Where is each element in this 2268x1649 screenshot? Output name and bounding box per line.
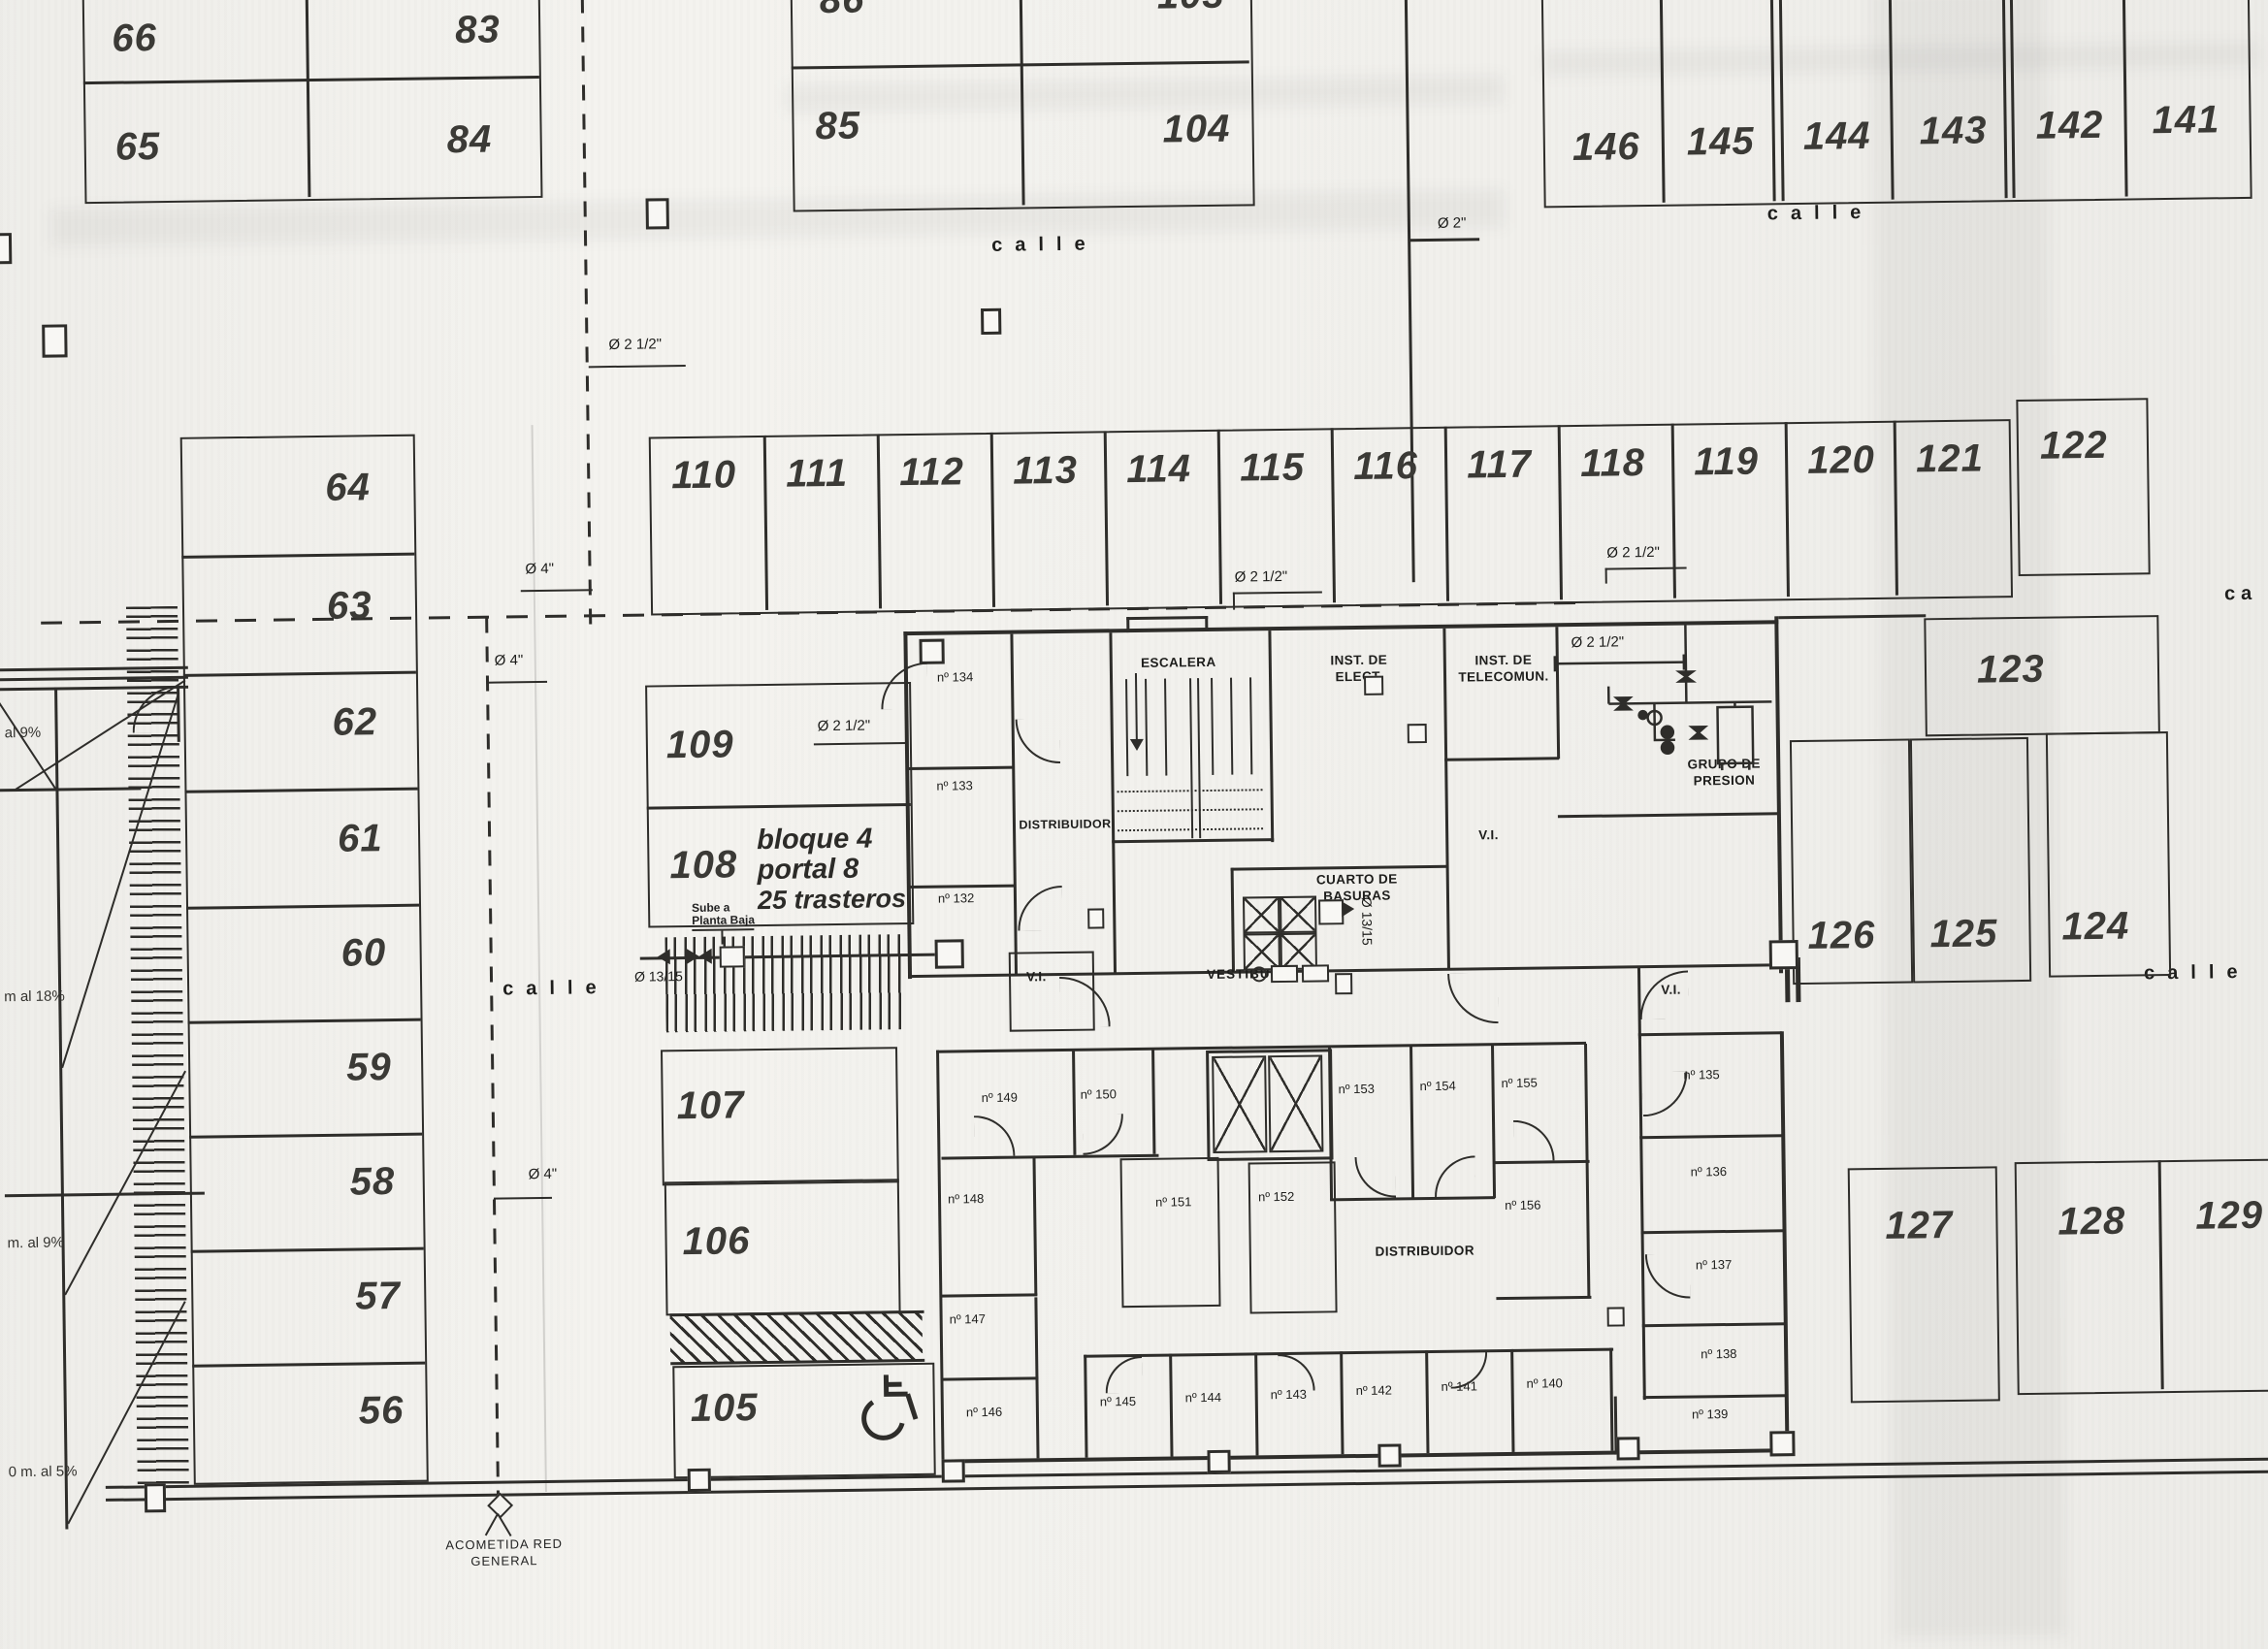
valve-icon — [658, 949, 670, 964]
parking-space-126: 126 — [1807, 914, 1875, 958]
paper-crease — [532, 425, 547, 1492]
ramp-slope-label-9a: al 9% — [5, 725, 42, 741]
street-label-calle-left: calle — [502, 977, 609, 1000]
marker-square — [1335, 973, 1352, 994]
curb-marker — [1207, 1450, 1230, 1473]
curb-marker — [1377, 1443, 1401, 1467]
parking-space-120: 120 — [1807, 438, 1875, 483]
wall — [1268, 630, 1274, 842]
trastero-label-133: nº 133 — [936, 778, 972, 792]
wall — [1330, 1196, 1495, 1201]
wall — [1072, 1051, 1076, 1155]
wall — [1510, 1349, 1514, 1452]
parking-space-108: 108 — [669, 843, 737, 888]
door-arc — [1278, 1354, 1314, 1391]
trastero-label-145: nº 145 — [1100, 1394, 1136, 1408]
parking-space-127: 127 — [1885, 1204, 1953, 1248]
room-label-escalera: ESCALERA — [1116, 655, 1242, 673]
curb-marker — [1769, 1431, 1795, 1456]
marker-square — [981, 308, 1001, 335]
no-parking-hatch — [670, 1312, 923, 1364]
floor-plan-scan: 66 83 65 84 86 103 85 104 146 145 144 14… — [0, 0, 2268, 1649]
trastero-label-147: nº 147 — [950, 1311, 986, 1326]
marker-square — [42, 324, 67, 357]
block-note-bloque: bloque 4 — [757, 824, 926, 857]
curb-marker — [145, 1483, 166, 1512]
pipe-tick — [1409, 238, 1479, 241]
parking-space-60: 60 — [340, 931, 386, 976]
parking-space-61: 61 — [338, 817, 383, 861]
parking-block-topright — [1540, 0, 2252, 208]
wall — [1084, 1355, 1087, 1458]
acometida-leg — [485, 1513, 499, 1536]
door-arc — [1450, 1351, 1487, 1388]
door-arc — [974, 1115, 1016, 1157]
trastero-label-144: nº 144 — [1185, 1390, 1221, 1405]
pump-icon — [1271, 965, 1298, 983]
marker-square — [1318, 899, 1344, 924]
parking-space-122: 122 — [2040, 424, 2108, 469]
trastero-label-148: nº 148 — [948, 1191, 984, 1206]
door-arc — [1435, 1155, 1476, 1197]
parking-space-124: 124 — [2061, 905, 2129, 950]
block-note-trasteros: 25 trasteros — [758, 884, 927, 914]
ramp-edge — [54, 688, 68, 1530]
parking-space-144: 144 — [1802, 114, 1870, 159]
pipe-tick — [494, 1197, 552, 1200]
parking-space-118: 118 — [1580, 441, 1645, 486]
marker-square — [646, 198, 669, 229]
stair-dotted — [1118, 827, 1263, 831]
trastero-label-153: nº 153 — [1338, 1082, 1374, 1096]
trastero-label-134: nº 134 — [937, 669, 973, 684]
parking-space-83: 83 — [455, 8, 501, 52]
stair-tread — [1125, 679, 1128, 776]
trastero-label-138: nº 138 — [1701, 1346, 1736, 1361]
parking-space-111: 111 — [786, 452, 848, 497]
stair-notch — [1126, 617, 1129, 632]
parking-space-84: 84 — [446, 118, 492, 163]
trastero-label-149: nº 149 — [982, 1090, 1018, 1105]
wall — [1034, 1297, 1039, 1458]
parking-space-59: 59 — [346, 1046, 392, 1090]
stair-tread — [1230, 678, 1233, 775]
parking-space-105: 105 — [691, 1386, 759, 1431]
door-arc — [1642, 1072, 1688, 1117]
parking-space-116: 116 — [1353, 444, 1418, 489]
trastero-label-151: nº 151 — [1155, 1194, 1191, 1209]
wall — [1010, 634, 1018, 976]
door-arc — [1513, 1119, 1555, 1161]
marker-square — [1087, 908, 1104, 928]
pipe-tick — [589, 365, 686, 368]
parking-space-58: 58 — [349, 1160, 395, 1205]
pump-group-schematic — [1549, 624, 1780, 821]
parking-space-86-cut: 86 — [820, 0, 865, 22]
stair-tread — [1249, 677, 1252, 774]
wall — [1496, 1296, 1591, 1300]
ramp-slope-label-18: m al 18% — [4, 987, 65, 1005]
parking-space-141: 141 — [2152, 98, 2219, 143]
room-151-box — [1120, 1157, 1221, 1308]
stair-dotted — [1118, 808, 1263, 812]
door-arc — [1083, 1114, 1124, 1155]
parking-space-113: 113 — [1013, 449, 1078, 494]
parking-space-125: 125 — [1929, 912, 1997, 956]
wall — [1638, 1031, 1782, 1036]
pipe-tick — [487, 681, 547, 684]
stair-tread — [1164, 679, 1167, 776]
stair-note-line2: Planta Baja — [692, 914, 769, 927]
parking-space-115: 115 — [1240, 446, 1305, 491]
trastero-label-155: nº 155 — [1501, 1076, 1537, 1090]
trastero-label-135: nº 135 — [1683, 1067, 1719, 1082]
building-wall-bottom — [942, 1448, 1792, 1463]
building-wall-right-lower — [1780, 1031, 1790, 1454]
stair-dotted — [1118, 789, 1263, 792]
stair-note: Sube a Planta Baja — [692, 901, 769, 927]
door-arc — [1447, 973, 1499, 1024]
door-arc — [1639, 971, 1689, 1020]
curb-marker — [1616, 1437, 1639, 1460]
stair-tread — [1211, 678, 1214, 775]
wall — [1444, 757, 1559, 761]
room-label-inst-telecom: INST. DE TELECOMUN. — [1449, 652, 1558, 686]
wall — [1112, 838, 1274, 843]
trastero-label-142: nº 142 — [1356, 1383, 1392, 1398]
parking-space-112: 112 — [899, 450, 964, 495]
door-arc — [1059, 976, 1111, 1027]
marker-square — [1607, 1307, 1625, 1326]
parking-space-106: 106 — [682, 1219, 750, 1264]
pipe-label-d2: Ø 2" — [1438, 214, 1467, 231]
accessibility-icon — [857, 1369, 922, 1457]
wall — [1584, 1044, 1590, 1298]
wall — [1084, 1348, 1613, 1358]
parking-space-62: 62 — [332, 700, 377, 745]
stair-notch — [1205, 616, 1208, 631]
room-152-box — [1248, 1161, 1338, 1313]
valve-icon — [687, 949, 699, 964]
wall — [1637, 967, 1641, 1039]
wall — [909, 885, 1016, 889]
pump-icon — [1302, 964, 1329, 982]
parking-box-127 — [1848, 1166, 2000, 1403]
acometida-symbol — [487, 1493, 513, 1519]
pipe-label-d1315-b: Ø 13/15 — [1359, 897, 1376, 946]
door-arc — [1355, 1157, 1397, 1199]
pipe-label-d1315-a: Ø 13/15 — [634, 968, 683, 985]
parking-space-104: 104 — [1162, 108, 1230, 152]
stair-tread — [1145, 679, 1148, 776]
parking-space-146: 146 — [1572, 125, 1640, 170]
shaft-icon — [1280, 896, 1316, 933]
wall — [1491, 1045, 1496, 1198]
parking-space-107: 107 — [676, 1083, 744, 1128]
lift-shaft-icon — [1212, 1055, 1267, 1153]
wall — [1641, 1229, 1785, 1234]
parking-space-85: 85 — [815, 105, 860, 149]
wall — [1254, 1352, 1258, 1455]
acometida-leg — [498, 1514, 512, 1536]
ramp-slope-label-5: 0 m. al 5% — [9, 1463, 78, 1480]
stair-notch — [1126, 616, 1208, 620]
valve-icon — [1342, 901, 1354, 917]
building-wall-left-lower — [936, 1051, 945, 1466]
parking-space-143: 143 — [1919, 109, 1987, 153]
pipe-label-d212-d: Ø 2 1/2" — [1571, 633, 1624, 651]
trastero-label-140: nº 140 — [1526, 1375, 1562, 1390]
column-marker — [919, 639, 944, 664]
dashed-acometida-vertical — [485, 618, 500, 1499]
pipe-label-d4-a: Ø 4" — [525, 561, 554, 577]
dashed-boundary-vertical — [581, 0, 593, 628]
parking-space-119: 119 — [1694, 440, 1759, 485]
pipe-label-d4-b: Ø 4" — [495, 652, 524, 668]
trastero-label-146: nº 146 — [966, 1405, 1002, 1419]
parking-space-128: 128 — [2057, 1200, 2125, 1245]
parking-space-103-cut: 103 — [1157, 0, 1225, 18]
trastero-label-150: nº 150 — [1081, 1086, 1117, 1101]
door-arc — [1016, 719, 1061, 764]
curb-marker — [942, 1459, 965, 1482]
marker-square — [935, 939, 964, 968]
parking-block-left-column — [180, 435, 429, 1485]
wall — [1231, 865, 1448, 871]
stair-arrow-line — [1135, 673, 1138, 741]
parking-space-117: 117 — [1467, 443, 1532, 488]
valve-icon — [699, 949, 712, 964]
stair-stringer — [1189, 678, 1193, 838]
room-label-distribuidor-upper: DISTRIBUIDOR — [1019, 817, 1112, 833]
trastero-label-154: nº 154 — [1419, 1079, 1455, 1093]
ramp-slope-label-9b: m. al 9% — [7, 1234, 64, 1251]
stair-stringer — [1197, 678, 1201, 838]
plan-drawing: 66 83 65 84 86 103 85 104 146 145 144 14… — [0, 0, 2268, 1649]
meter-box-icon — [720, 946, 745, 967]
trastero-label-132: nº 132 — [938, 890, 974, 905]
wall — [1231, 868, 1235, 973]
door-arc — [1018, 886, 1063, 931]
acometida-note: ACOMETIDA RED GENERAL — [417, 1536, 592, 1570]
wall — [1169, 1354, 1173, 1457]
parking-space-109: 109 — [666, 723, 734, 767]
wall — [1409, 1046, 1414, 1199]
parking-space-142: 142 — [2035, 104, 2103, 148]
parking-space-56: 56 — [359, 1389, 405, 1434]
trastero-label-152: nº 152 — [1258, 1189, 1294, 1204]
shaft-icon — [1243, 896, 1280, 933]
parking-space-65: 65 — [114, 125, 160, 170]
door-arc — [881, 663, 928, 710]
parking-space-145: 145 — [1687, 120, 1755, 165]
pump-icon — [1251, 966, 1267, 982]
column-marker — [1364, 676, 1383, 695]
room-label-vi-right: V.I. — [1478, 827, 1499, 844]
parking-space-110: 110 — [671, 453, 736, 498]
marker-square — [0, 233, 12, 264]
wall — [942, 1376, 1038, 1380]
wall — [1340, 1351, 1344, 1454]
room-label-vi-left: V.I. — [1026, 969, 1047, 986]
wall — [1109, 632, 1117, 974]
wall — [1643, 1394, 1787, 1399]
parking-space-57: 57 — [355, 1275, 401, 1319]
street-label-calle-cut: ca — [2224, 583, 2258, 605]
column-marker — [1769, 940, 1798, 969]
pipe-label-d212-a: Ø 2 1/2" — [608, 336, 662, 353]
block-note: bloque 4 portal 8 25 trasteros — [757, 824, 927, 915]
parking-space-66: 66 — [112, 16, 157, 61]
parking-space-129: 129 — [2195, 1194, 2263, 1239]
parking-space-64: 64 — [325, 466, 371, 510]
wall — [1425, 1350, 1429, 1453]
parking-space-63: 63 — [327, 584, 373, 629]
stair-arrow-head — [1130, 739, 1144, 751]
room-label-distribuidor-lower: DISTRIBUIDOR — [1362, 1243, 1488, 1261]
door-arc — [1105, 1356, 1142, 1393]
block-note-portal: portal 8 — [757, 854, 926, 887]
parking-space-121: 121 — [1916, 437, 1984, 482]
pipe-tick — [521, 589, 593, 592]
acometida-line2: GENERAL — [417, 1552, 592, 1570]
wall — [1032, 1157, 1037, 1295]
wall — [1642, 1322, 1786, 1327]
wall — [907, 766, 1014, 770]
door-arc — [1645, 1254, 1691, 1300]
trastero-label-136: nº 136 — [1691, 1164, 1727, 1179]
ramp-diagonal — [0, 699, 57, 791]
parking-space-123: 123 — [1977, 648, 2045, 693]
trastero-label-137: nº 137 — [1696, 1257, 1732, 1272]
wall — [1151, 1050, 1155, 1154]
trastero-label-139: nº 139 — [1692, 1406, 1728, 1421]
lift-shaft-icon — [1268, 1054, 1323, 1152]
column-marker — [1408, 724, 1427, 743]
ramp-edge — [0, 787, 141, 791]
street-label-calle-top: calle — [991, 233, 1098, 256]
trastero-label-156: nº 156 — [1505, 1198, 1540, 1212]
parking-space-114: 114 — [1126, 447, 1191, 492]
room-label-inst-elect: INST. DE ELECT. — [1306, 652, 1412, 686]
street-label-calle-topright: calle — [1767, 202, 1874, 225]
pipe-label-d4-c: Ø 4" — [529, 1166, 558, 1182]
wall — [941, 1293, 1037, 1297]
wall — [1639, 1134, 1783, 1139]
curb-marker — [688, 1469, 711, 1492]
